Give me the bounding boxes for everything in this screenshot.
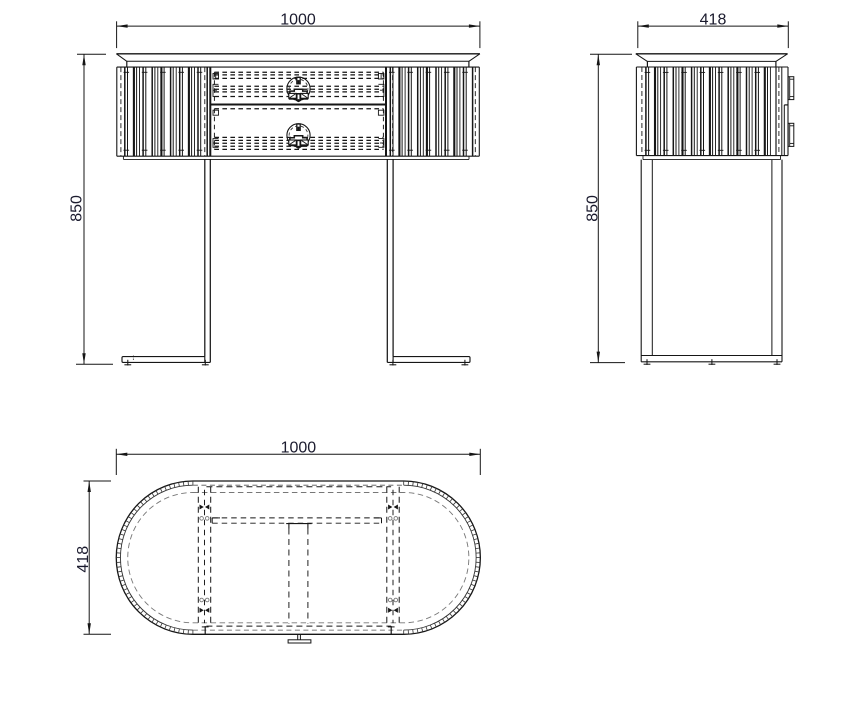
svg-text:850: 850 [585, 195, 602, 222]
svg-text:418: 418 [75, 546, 92, 573]
svg-text:850: 850 [69, 195, 86, 222]
svg-text:418: 418 [700, 11, 727, 28]
svg-text:1000: 1000 [281, 439, 317, 456]
svg-text:1000: 1000 [280, 11, 316, 28]
